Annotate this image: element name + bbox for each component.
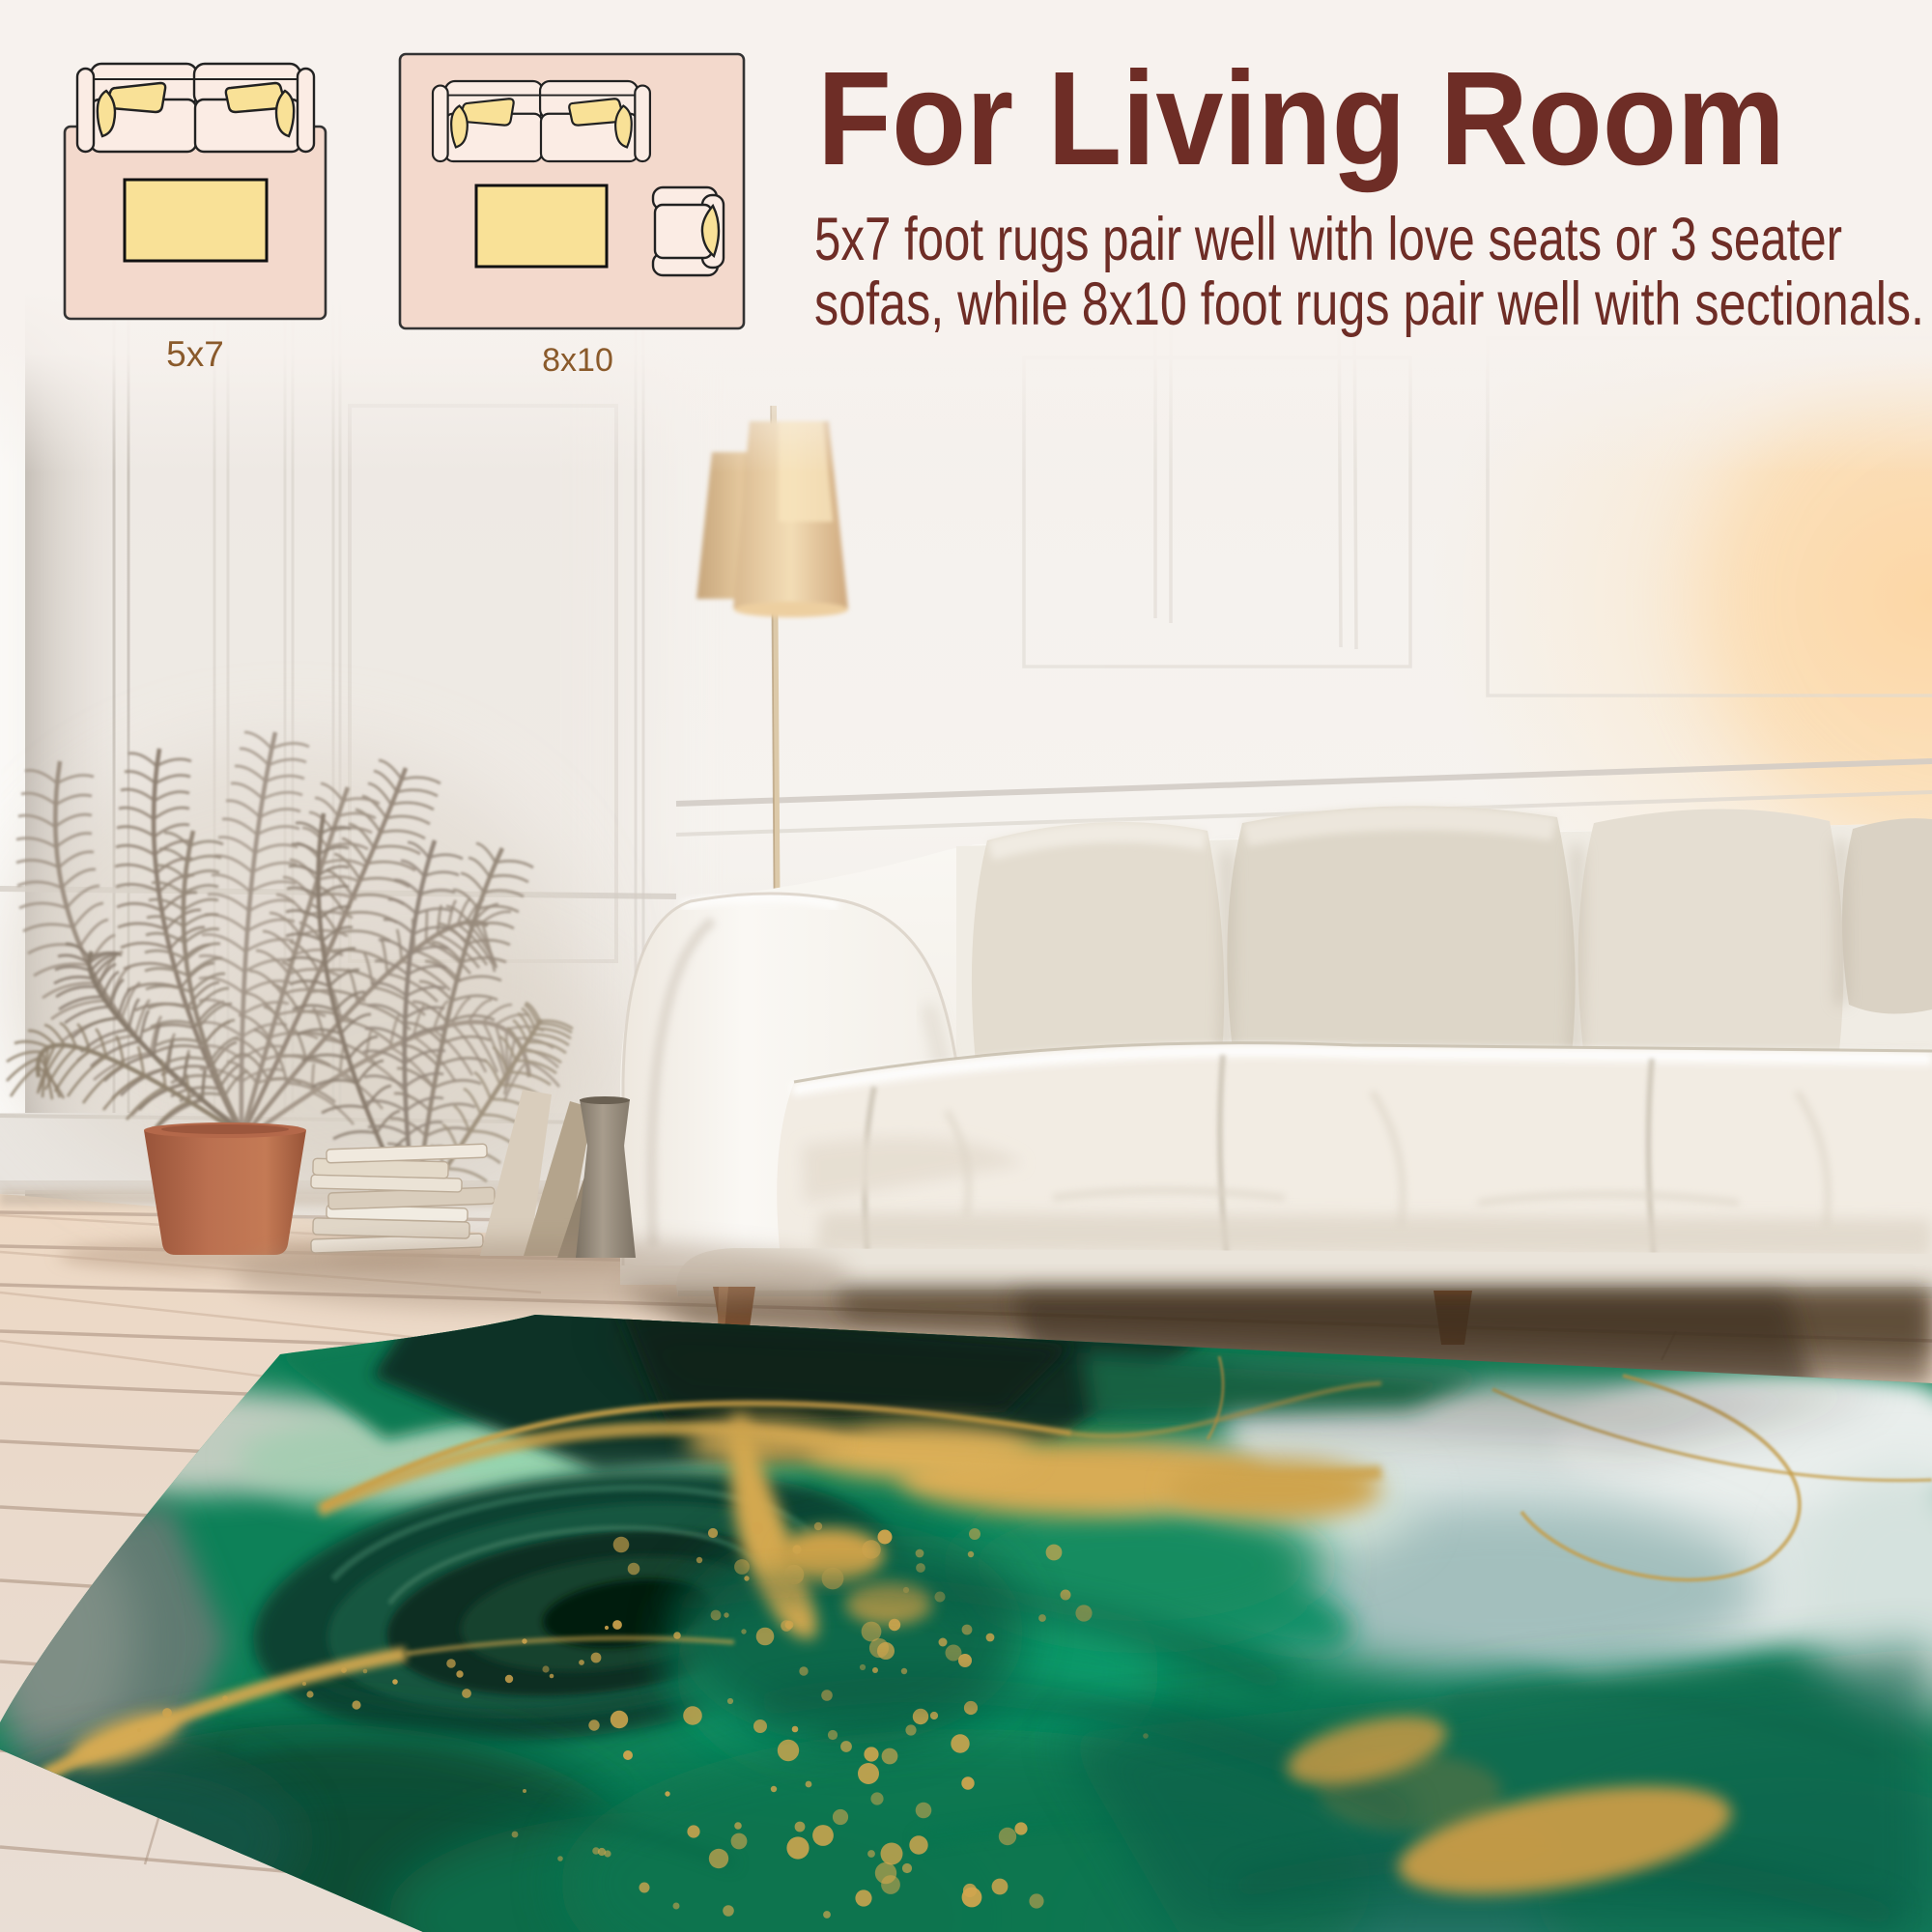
- svg-text:5x7: 5x7: [166, 334, 224, 374]
- svg-text:5x7 foot rugs pair well with l: 5x7 foot rugs pair well with love seats …: [814, 206, 1842, 273]
- svg-text:For Living Room: For Living Room: [817, 44, 1785, 193]
- svg-text:8x10: 8x10: [542, 342, 613, 379]
- svg-text:sofas, while 8x10 foot rugs pa: sofas, while 8x10 foot rugs pair well wi…: [814, 270, 1924, 338]
